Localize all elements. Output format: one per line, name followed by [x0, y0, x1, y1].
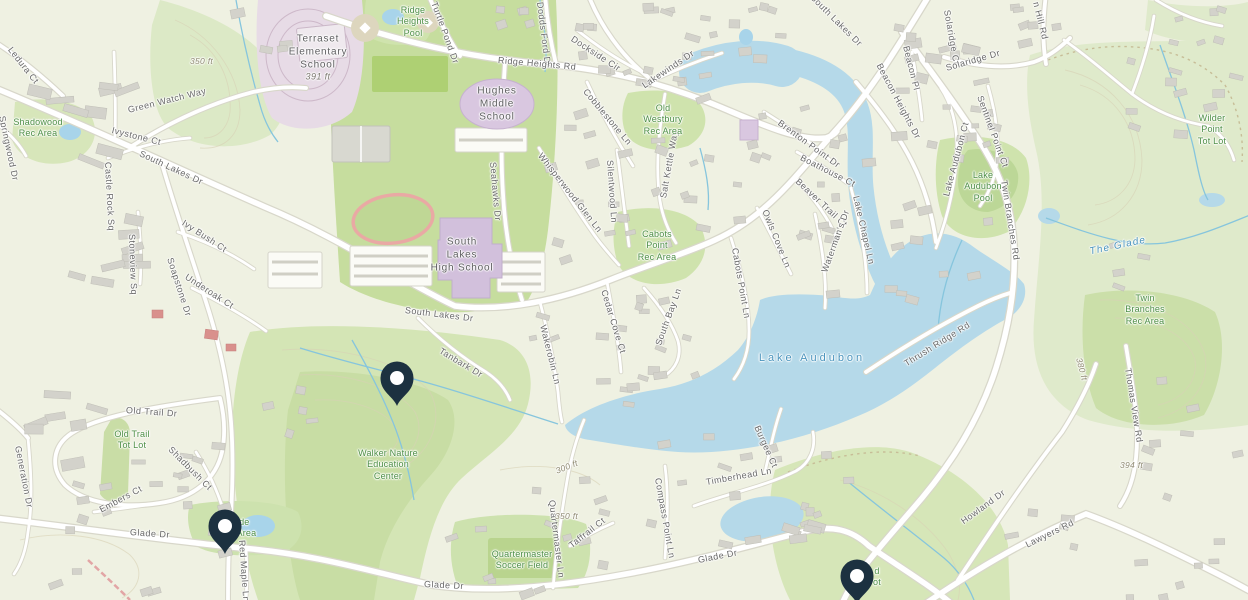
hughes-middle-school-building: [460, 79, 534, 129]
ridge-heights-pool-water: [382, 9, 404, 25]
glade-rec-pond: [241, 515, 275, 537]
map-base-layer: [0, 0, 1248, 600]
map-canvas[interactable]: Ledura CtSpringwood DrCastle Rock SqGree…: [0, 0, 1248, 600]
